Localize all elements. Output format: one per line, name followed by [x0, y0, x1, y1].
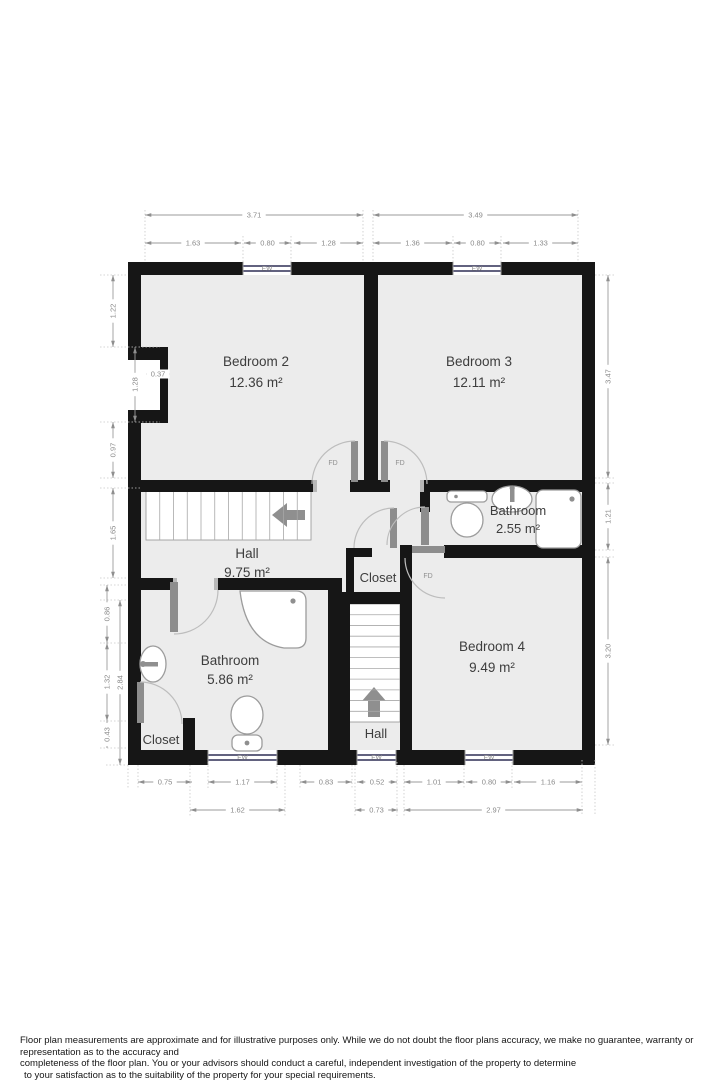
dimension-value: 1.16: [541, 778, 556, 787]
dimension-value: 1.63: [186, 239, 201, 248]
ew-window-tag: EW: [262, 266, 273, 273]
dimension-value: 0.80: [482, 778, 497, 787]
bedroom3-name: Bedroom 3: [446, 354, 512, 369]
disclaimer-line: to your satisfaction as to the suitabili…: [20, 1070, 712, 1080]
dimension-value: 3.49: [468, 211, 483, 220]
dimension-value: 0.86: [103, 607, 112, 622]
dimension-value: 0.75: [158, 778, 173, 787]
dimension-value: 0.80: [470, 239, 485, 248]
bedroom2-area: 12.36 m²: [229, 375, 283, 390]
dimension-value: 0.43: [103, 727, 112, 742]
dimension-value: 1.32: [103, 675, 112, 690]
toilet-tank-icon: [447, 491, 487, 502]
bathroom-lower-area: 5.86 m²: [207, 672, 253, 687]
door-leaf: [421, 507, 429, 545]
toilet-bowl-icon: [451, 503, 483, 537]
dimension-value: 1.21: [604, 509, 613, 524]
ew-window-tag: EW: [472, 266, 483, 273]
bathroom-upper-name: Bathroom: [490, 503, 546, 518]
dimension-value: 0.52: [370, 778, 385, 787]
dimension-value: 1.28: [131, 377, 140, 392]
bathroom-lower-name: Bathroom: [201, 653, 260, 668]
door-leaf: [351, 441, 358, 482]
bedroom2-name: Bedroom 2: [223, 354, 289, 369]
door-leaf: [137, 682, 144, 723]
floor-plan-drawing: EWEWEWEWEW: [0, 0, 720, 1080]
dimension-value: 0.37: [151, 370, 166, 379]
hall-upper-name: Hall: [235, 546, 258, 561]
door-leaf: [381, 441, 388, 482]
ew-window-tag: EW: [484, 755, 495, 762]
disclaimer-line: completeness of the floor plan. You or y…: [20, 1058, 712, 1070]
door-leaf: [412, 546, 445, 553]
bedroom4-name: Bedroom 4: [459, 639, 526, 654]
chimney-wall: [160, 358, 168, 412]
hall-lower-name: Hall: [365, 726, 388, 741]
door-leaf: [170, 582, 178, 632]
dimension-value: 1.17: [235, 778, 250, 787]
ew-window-tag: EW: [237, 755, 248, 762]
dimension-value: 1.36: [405, 239, 420, 248]
ew-window-tag: EW: [371, 755, 382, 762]
dimension-value: 1.62: [230, 806, 245, 815]
closet-center-name: Closet: [360, 570, 397, 585]
bedroom4-area: 9.49 m²: [469, 660, 515, 675]
floor-plan-page: EWEWEWEWEW: [0, 0, 720, 1080]
dimension-value: 1.01: [427, 778, 442, 787]
dimension-value: 3.71: [247, 211, 262, 220]
dimension-value: 0.73: [369, 806, 384, 815]
dimension-value: 0.80: [260, 239, 275, 248]
bedroom3-area: 12.11 m²: [453, 375, 506, 390]
dimension-value: 1.22: [109, 304, 118, 319]
staircase-lower: [342, 604, 400, 722]
dimension-value: 1.33: [533, 239, 548, 248]
fd-door-tag: FD: [423, 573, 432, 580]
hall-upper-area: 9.75 m²: [224, 565, 270, 580]
dimension-value: 0.83: [319, 778, 334, 787]
fd-door-tag: FD: [395, 460, 404, 467]
disclaimer-line: Floor plan measurements are approximate …: [20, 1035, 712, 1058]
dimension-value: 0.97: [109, 443, 118, 458]
bathroom-upper-area: 2.55 m²: [496, 521, 541, 536]
disclaimer: Floor plan measurements are approximate …: [20, 1035, 712, 1080]
closet-corner-name: Closet: [143, 732, 180, 747]
fd-door-tag: FD: [328, 460, 337, 467]
dimension-value: 3.20: [604, 644, 613, 659]
staircase-upper: [146, 490, 311, 540]
dimension-value: 2.97: [486, 806, 501, 815]
dimension-value: 3.47: [604, 369, 613, 384]
toilet-bowl-icon: [231, 696, 263, 734]
dimension-value: 1.28: [321, 239, 336, 248]
dimension-value: 2.84: [116, 675, 125, 690]
dimension-value: 1.65: [109, 526, 118, 541]
